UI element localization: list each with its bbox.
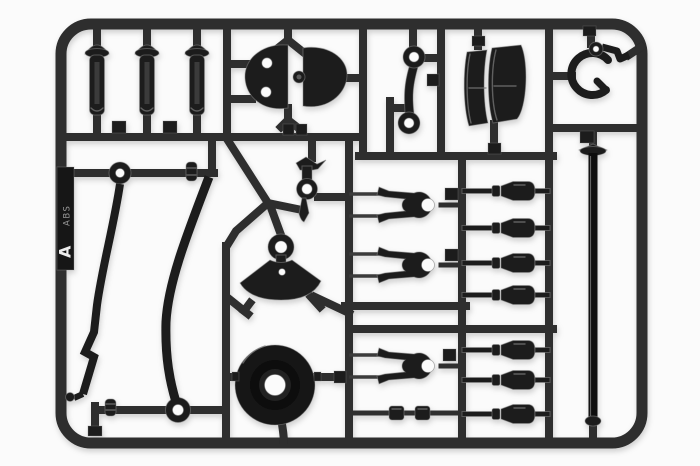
- ball-connector-7: [462, 405, 550, 424]
- steering-lever: [296, 157, 326, 222]
- damper-part-3: [185, 45, 209, 115]
- sprue-photo: ABS A: [0, 0, 700, 466]
- wishbone-1: [377, 187, 435, 223]
- ball-connector-1: [462, 182, 550, 201]
- sprue-group: ABS A: [56, 24, 643, 444]
- round-drum-hub: [232, 345, 321, 425]
- ball-connector-2: [462, 219, 550, 238]
- clamp-shells: [464, 45, 526, 126]
- c-clip-hook: [571, 42, 629, 95]
- sprue-svg: ABS A: [0, 0, 700, 466]
- long-rod: [579, 144, 607, 426]
- curved-blade-1-foot: [74, 394, 83, 398]
- wishbone-2: [377, 247, 435, 283]
- damper-parts: [85, 45, 209, 115]
- wishbone-3: [377, 348, 435, 384]
- ring-grommet-1: [109, 162, 131, 184]
- curved-blade-2: [166, 177, 209, 402]
- fan-cam-plate: [240, 234, 321, 300]
- dogbone-link: [398, 46, 425, 134]
- spool-bushing-2: [105, 399, 116, 416]
- damper-part-1: [85, 45, 109, 115]
- ball-connector-3: [462, 254, 550, 273]
- ball-connector-6: [462, 371, 550, 390]
- half-disc-cam-right: [293, 47, 347, 106]
- ball-connector-5: [462, 341, 550, 360]
- curved-blade-1-foot-bead: [66, 393, 75, 402]
- ball-connector-4: [462, 286, 550, 305]
- runner-tag: ABS A: [56, 167, 75, 270]
- tag-letter: A: [56, 245, 75, 258]
- spool-bushing-1: [186, 162, 197, 181]
- curved-blade-1: [83, 184, 120, 394]
- damper-part-2: [135, 45, 159, 115]
- tag-material-mark: ABS: [63, 205, 73, 226]
